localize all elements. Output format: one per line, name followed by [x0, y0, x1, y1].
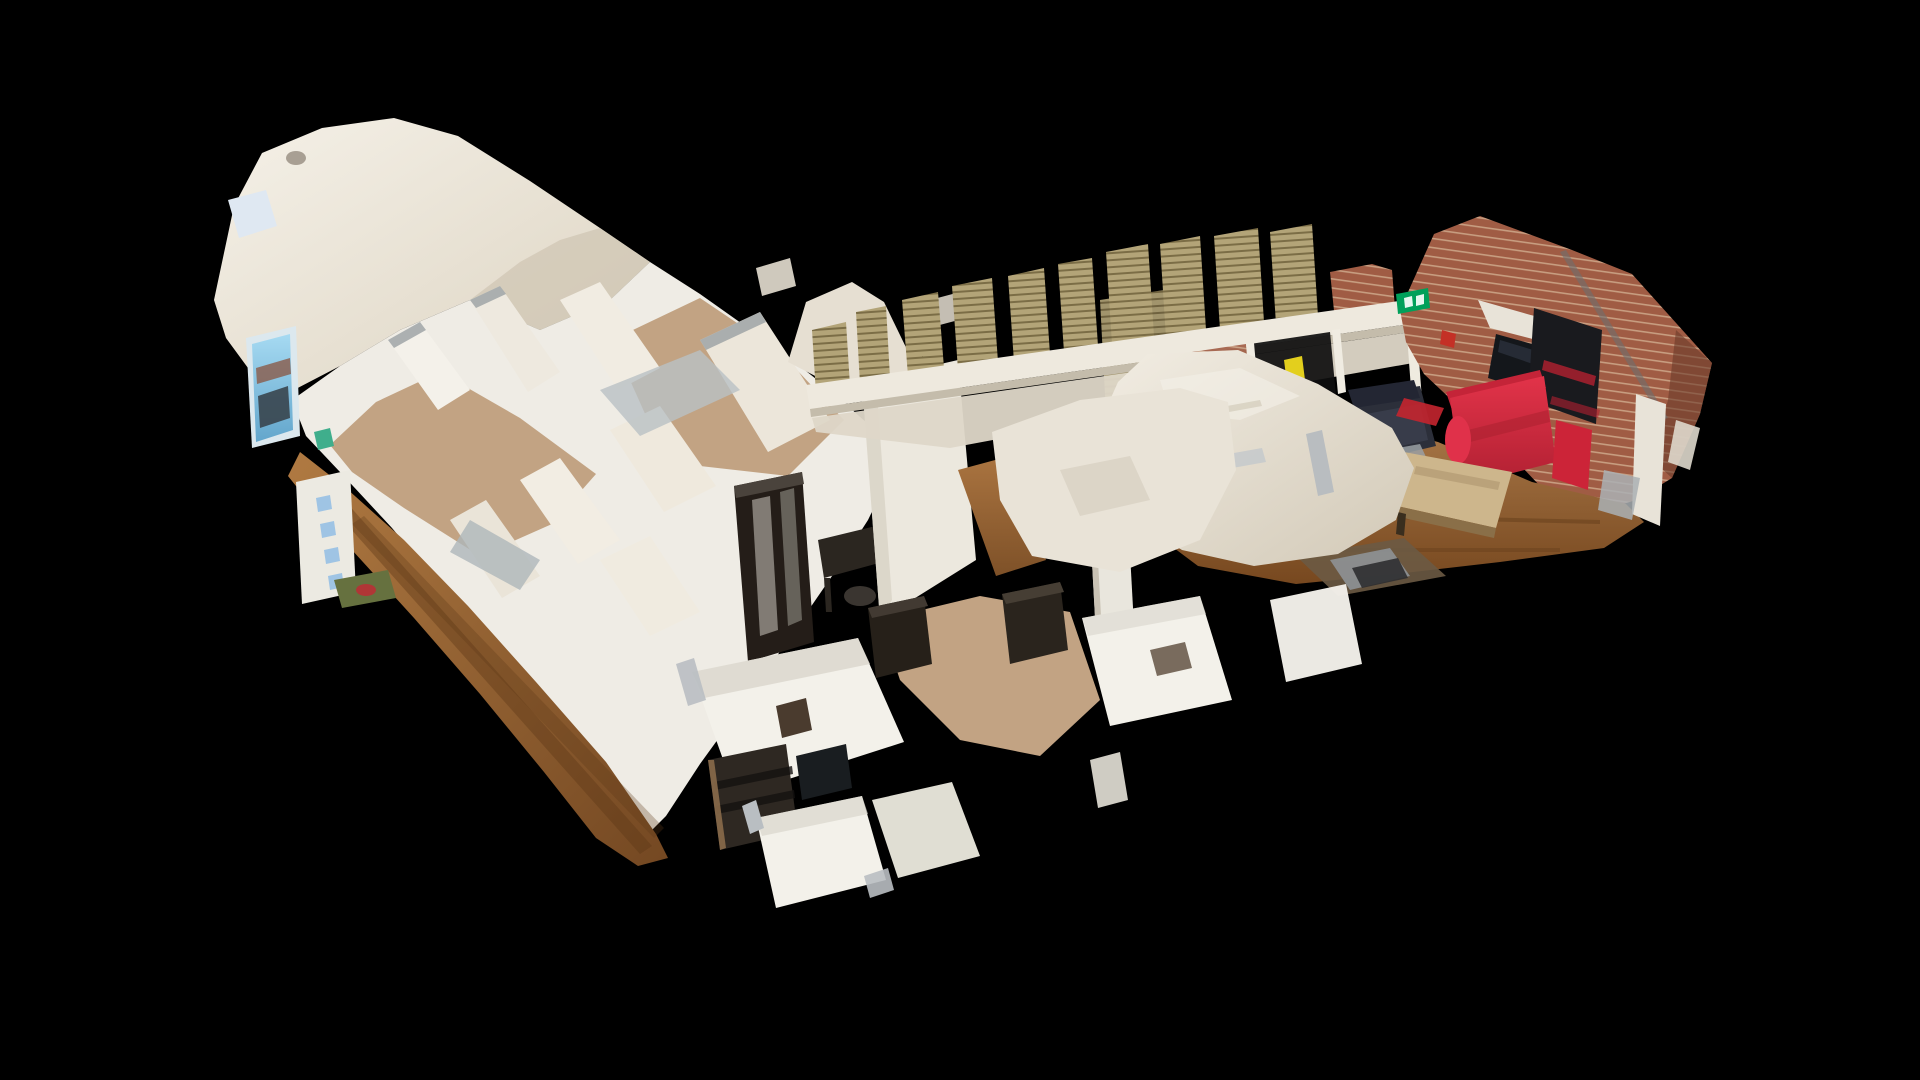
- door-glass-pane: [316, 495, 332, 512]
- red-sofa-armrest: [1445, 416, 1471, 464]
- fence-fragment: [952, 278, 998, 370]
- exit-sign-arrow: [1416, 294, 1424, 306]
- fence-fragment: [1058, 258, 1098, 352]
- dollhouse-3d-viewport[interactable]: [0, 0, 1920, 1080]
- fence-fragment: [1160, 236, 1206, 338]
- fence-fragment: [856, 306, 890, 384]
- exit-sign-glyph: [1404, 296, 1413, 308]
- fence-fragment: [1106, 244, 1154, 344]
- dollhouse-scene: [0, 0, 1920, 1080]
- roof-chimney-hole: [286, 151, 306, 165]
- fence-fragment: [1270, 224, 1318, 324]
- white-fragment-column: [1632, 394, 1666, 526]
- fence-fragment: [1214, 228, 1264, 330]
- door-glass-pane: [320, 521, 336, 538]
- door-glass-pane: [324, 547, 340, 564]
- welcome-mat-flower: [356, 584, 376, 596]
- fence-fragment: [1008, 268, 1050, 362]
- fence-fragment: [902, 292, 944, 376]
- desk-chair: [844, 586, 876, 606]
- red-sofa-side-fragment: [1552, 420, 1592, 490]
- app-window: [0, 0, 1920, 1080]
